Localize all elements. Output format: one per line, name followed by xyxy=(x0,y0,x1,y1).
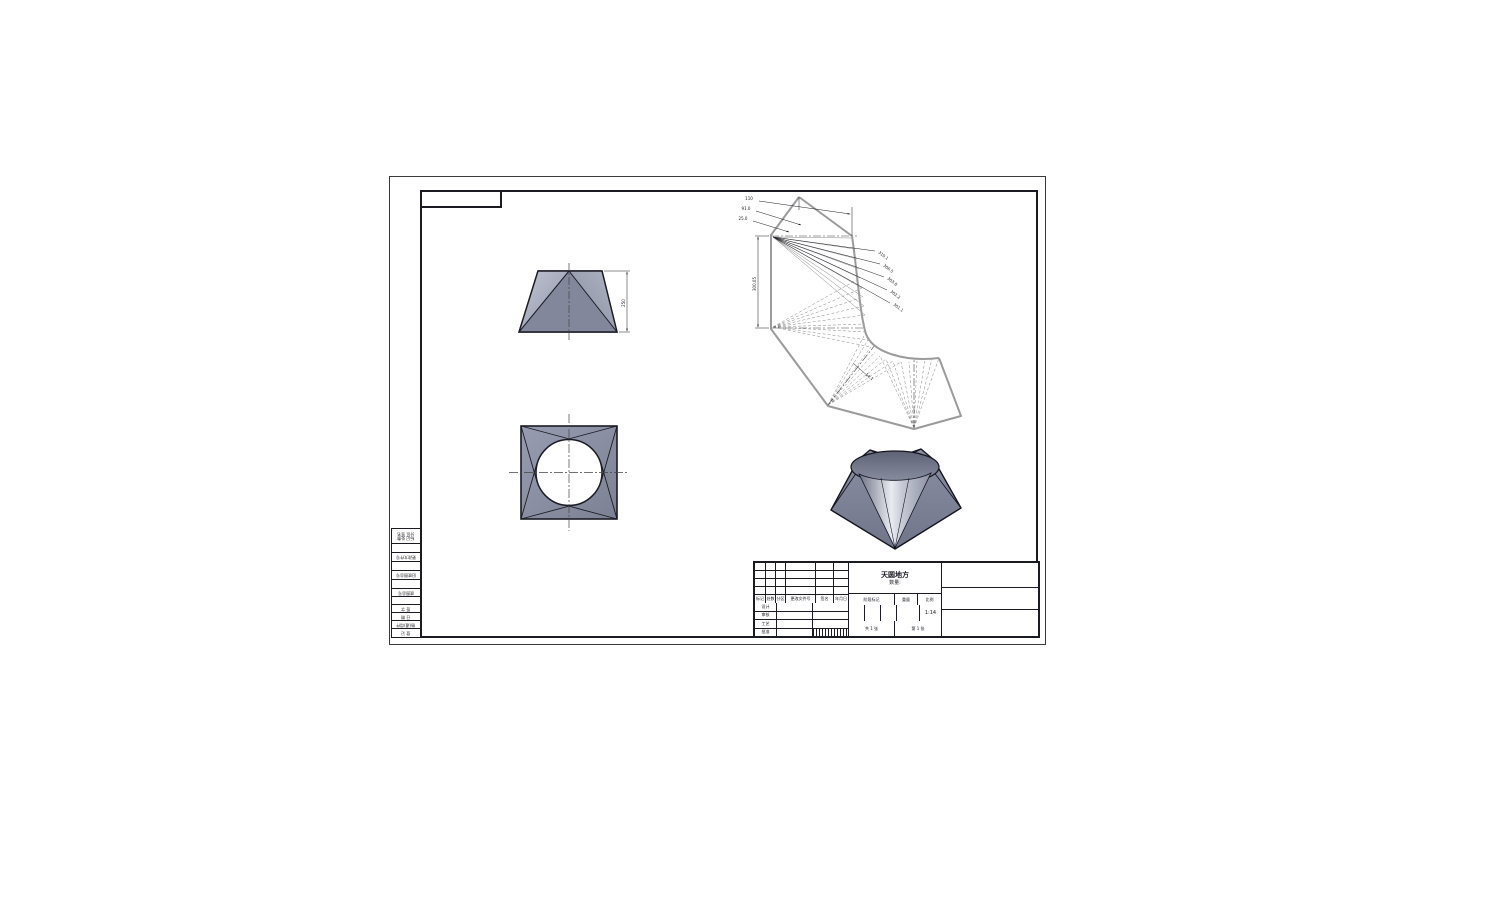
scale-value: 1:14 xyxy=(920,605,941,621)
chord-dim-0: 310.1 xyxy=(877,250,889,261)
sign-label-approve: 批准 xyxy=(755,629,776,637)
fan-lines-3 xyxy=(828,332,901,405)
stage-label: 阶段标记 xyxy=(849,594,894,605)
sign-label-process: 工艺 xyxy=(755,620,776,628)
chord-dim-5: 14.1 xyxy=(864,372,874,382)
stage-weight-scale-values: 1:14 xyxy=(849,605,941,621)
top-view xyxy=(509,414,629,531)
title-block-middle: 天圆地方 数量: 阶段标记 重量 比例 1:14 共 1 张 第 xyxy=(849,563,942,636)
chord-dim-2: 303.8 xyxy=(886,276,898,287)
leader-dim-2: 25.0 xyxy=(739,216,748,221)
front-height-dim-text: 250 xyxy=(621,299,626,307)
part-quantity-label: 数量: xyxy=(889,580,901,586)
barcode-cell xyxy=(813,629,848,637)
iso-view xyxy=(831,449,961,549)
chord-dim-3: 302.2 xyxy=(889,289,901,300)
rev-header-mark: 标记 xyxy=(755,595,765,603)
fan-lines-2 xyxy=(773,278,871,347)
weight-label: 重量 xyxy=(895,594,917,605)
pattern-vertical-dim: 300.05 xyxy=(752,236,769,328)
chord-dim-4: 301.1 xyxy=(892,302,904,313)
fan-lines-4 xyxy=(880,356,939,428)
title-block-right xyxy=(942,563,1038,636)
company-name-box xyxy=(942,563,1038,588)
part-name-box: 天圆地方 数量: xyxy=(849,563,941,594)
title-block-left: 标记 处数 分区 更改文件号 签名 年月日 设计 审核 工艺 批准 xyxy=(755,563,849,636)
screenshot-canvas: 标记 处数 分区 签名 更改文件号 旧底图总号 底图总号 签 字 日 期 借(通… xyxy=(0,0,1486,922)
rev-header-zone: 分区 xyxy=(776,595,785,603)
sign-label-check: 审核 xyxy=(755,612,776,620)
rev-header-count: 处数 xyxy=(766,595,775,603)
sheet-total: 共 1 张 xyxy=(849,621,894,636)
front-view: 250 xyxy=(519,263,630,340)
material-box xyxy=(942,610,1038,636)
drawing-sheet: 标记 处数 分区 签名 更改文件号 旧底图总号 底图总号 签 字 日 期 借(通… xyxy=(389,176,1046,645)
stage-mark-box xyxy=(849,605,864,621)
stage-mark-box xyxy=(881,605,896,621)
revision-table: 标记 处数 分区 更改文件号 签名 年月日 xyxy=(755,563,848,603)
weight-value xyxy=(897,605,919,621)
drawing-number-box xyxy=(942,588,1038,610)
pattern-outline xyxy=(771,197,961,429)
stage-weight-scale-header: 阶段标记 重量 比例 xyxy=(849,594,941,605)
sign-label-design: 设计 xyxy=(755,603,776,611)
leader-dim-0: 110 xyxy=(745,196,753,201)
part-name: 天圆地方 xyxy=(881,571,909,579)
chord-dim-1: 306.5 xyxy=(882,263,894,274)
development-pattern: 110 91.0 25.0 300.05 xyxy=(739,196,961,429)
signature-table: 设计 审核 工艺 批准 xyxy=(755,603,848,636)
stage-mark-box xyxy=(865,605,880,621)
sheet-index: 第 1 张 xyxy=(895,621,941,636)
rev-header-date: 年月日 xyxy=(834,595,848,603)
scale-label: 比例 xyxy=(918,594,941,605)
rev-header-docno: 更改文件号 xyxy=(786,595,815,603)
leader-dim-1: 91.0 xyxy=(742,206,751,211)
pattern-centerlines xyxy=(771,236,914,428)
vertical-dim-text: 300.05 xyxy=(752,277,757,291)
rev-header-sign: 签名 xyxy=(816,595,833,603)
sheet-count-row: 共 1 张 第 1 张 xyxy=(849,621,941,636)
title-block: 标记 处数 分区 更改文件号 签名 年月日 设计 审核 工艺 批准 天圆地方 xyxy=(753,561,1040,638)
